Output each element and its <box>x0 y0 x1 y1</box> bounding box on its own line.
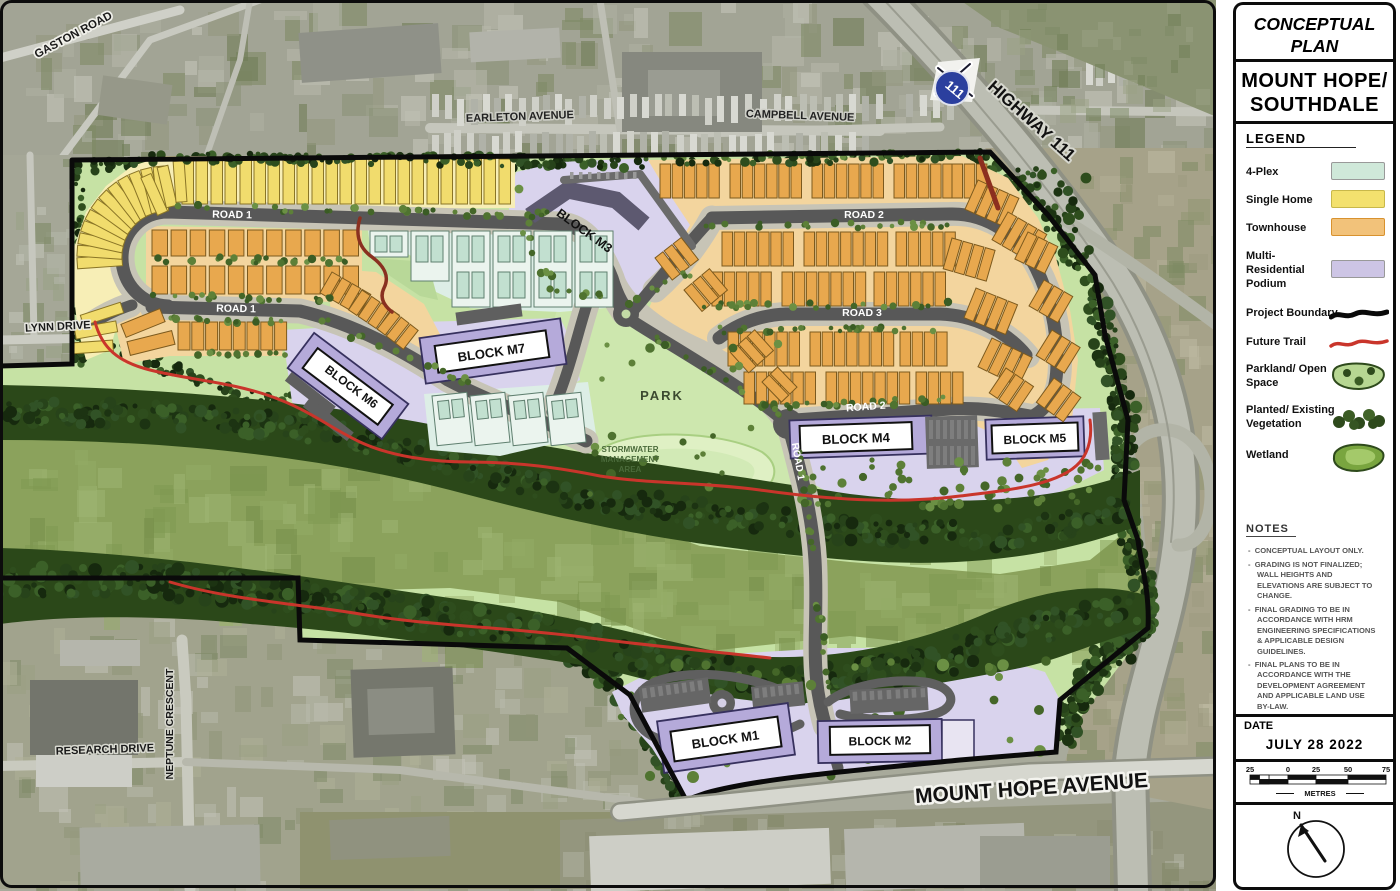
svg-text:25: 25 <box>1246 765 1254 774</box>
svg-text:ROAD 2: ROAD 2 <box>844 209 884 221</box>
svg-text:0: 0 <box>1286 765 1290 774</box>
svg-text:75: 75 <box>1382 765 1390 774</box>
svg-text:ROAD 1: ROAD 1 <box>212 209 252 222</box>
svg-text:MANAGEMENT: MANAGEMENT <box>601 455 659 464</box>
svg-text:BLOCK M5: BLOCK M5 <box>1003 431 1066 447</box>
svg-text:ROAD 3: ROAD 3 <box>842 307 882 319</box>
svg-text:METRES: METRES <box>1304 789 1335 798</box>
svg-text:BLOCK M2: BLOCK M2 <box>848 733 911 748</box>
svg-text:AREA: AREA <box>619 465 642 474</box>
svg-text:N: N <box>1293 810 1301 822</box>
svg-text:NEPTUNE CRESCENT: NEPTUNE CRESCENT <box>164 668 176 779</box>
svg-text:ROAD 1: ROAD 1 <box>216 303 256 316</box>
svg-text:PARK: PARK <box>640 388 684 403</box>
svg-text:25: 25 <box>1312 765 1320 774</box>
svg-text:STORMWATER: STORMWATER <box>601 445 658 454</box>
svg-text:50: 50 <box>1344 765 1352 774</box>
svg-text:BLOCK M4: BLOCK M4 <box>822 430 891 447</box>
